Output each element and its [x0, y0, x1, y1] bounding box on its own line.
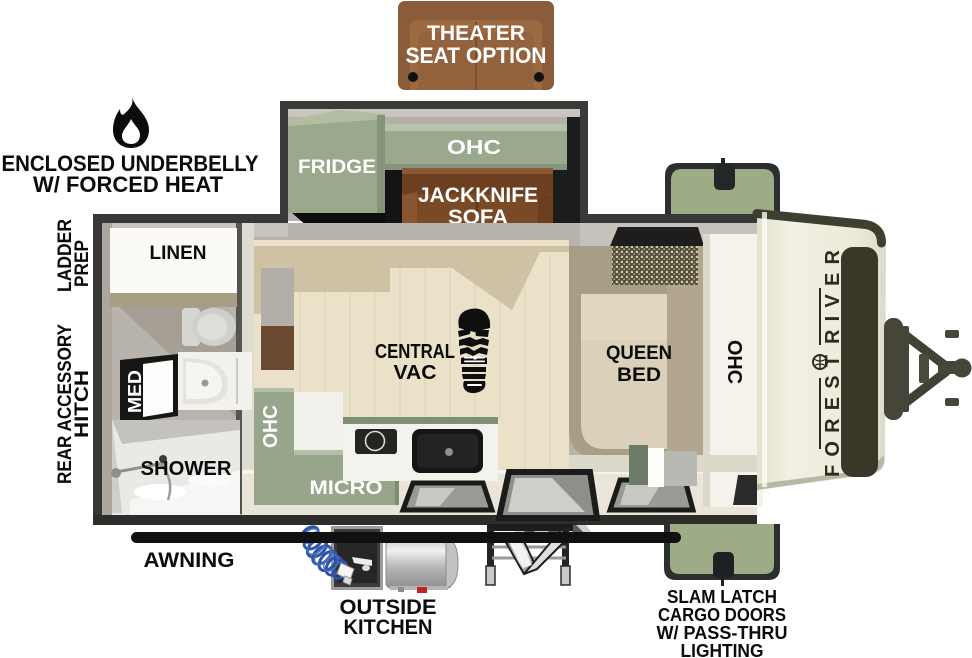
svg-text:RIVER: RIVER [822, 249, 844, 344]
svg-text:BED: BED [617, 365, 661, 386]
svg-text:SEAT OPTION: SEAT OPTION [406, 43, 547, 68]
svg-text:OHC: OHC [260, 405, 282, 448]
svg-text:PREP: PREP [72, 240, 93, 287]
svg-text:VAC: VAC [394, 362, 437, 384]
svg-text:MED: MED [125, 370, 145, 413]
svg-text:JACKKNIFE: JACKKNIFE [418, 184, 538, 207]
svg-text:W/ PASS-THRU: W/ PASS-THRU [657, 623, 788, 643]
svg-text:OHC: OHC [723, 340, 745, 384]
svg-text:SLAM LATCH: SLAM LATCH [667, 587, 777, 607]
svg-text:SHOWER: SHOWER [141, 458, 233, 480]
svg-text:W/ FORCED HEAT: W/ FORCED HEAT [33, 172, 224, 197]
svg-text:CARGO DOORS: CARGO DOORS [658, 605, 786, 625]
svg-text:MICRO: MICRO [310, 478, 383, 499]
svg-text:CENTRAL: CENTRAL [375, 341, 455, 363]
svg-text:HITCH: HITCH [72, 370, 93, 438]
svg-text:KITCHEN: KITCHEN [344, 616, 433, 639]
svg-text:AWNING: AWNING [144, 549, 235, 572]
svg-text:THEATER: THEATER [427, 22, 525, 45]
svg-text:LINEN: LINEN [150, 243, 207, 264]
svg-text:OHC: OHC [447, 137, 501, 159]
svg-text:LIGHTING: LIGHTING [681, 641, 764, 658]
svg-text:FRIDGE: FRIDGE [298, 157, 376, 178]
svg-text:QUEEN: QUEEN [606, 343, 672, 364]
